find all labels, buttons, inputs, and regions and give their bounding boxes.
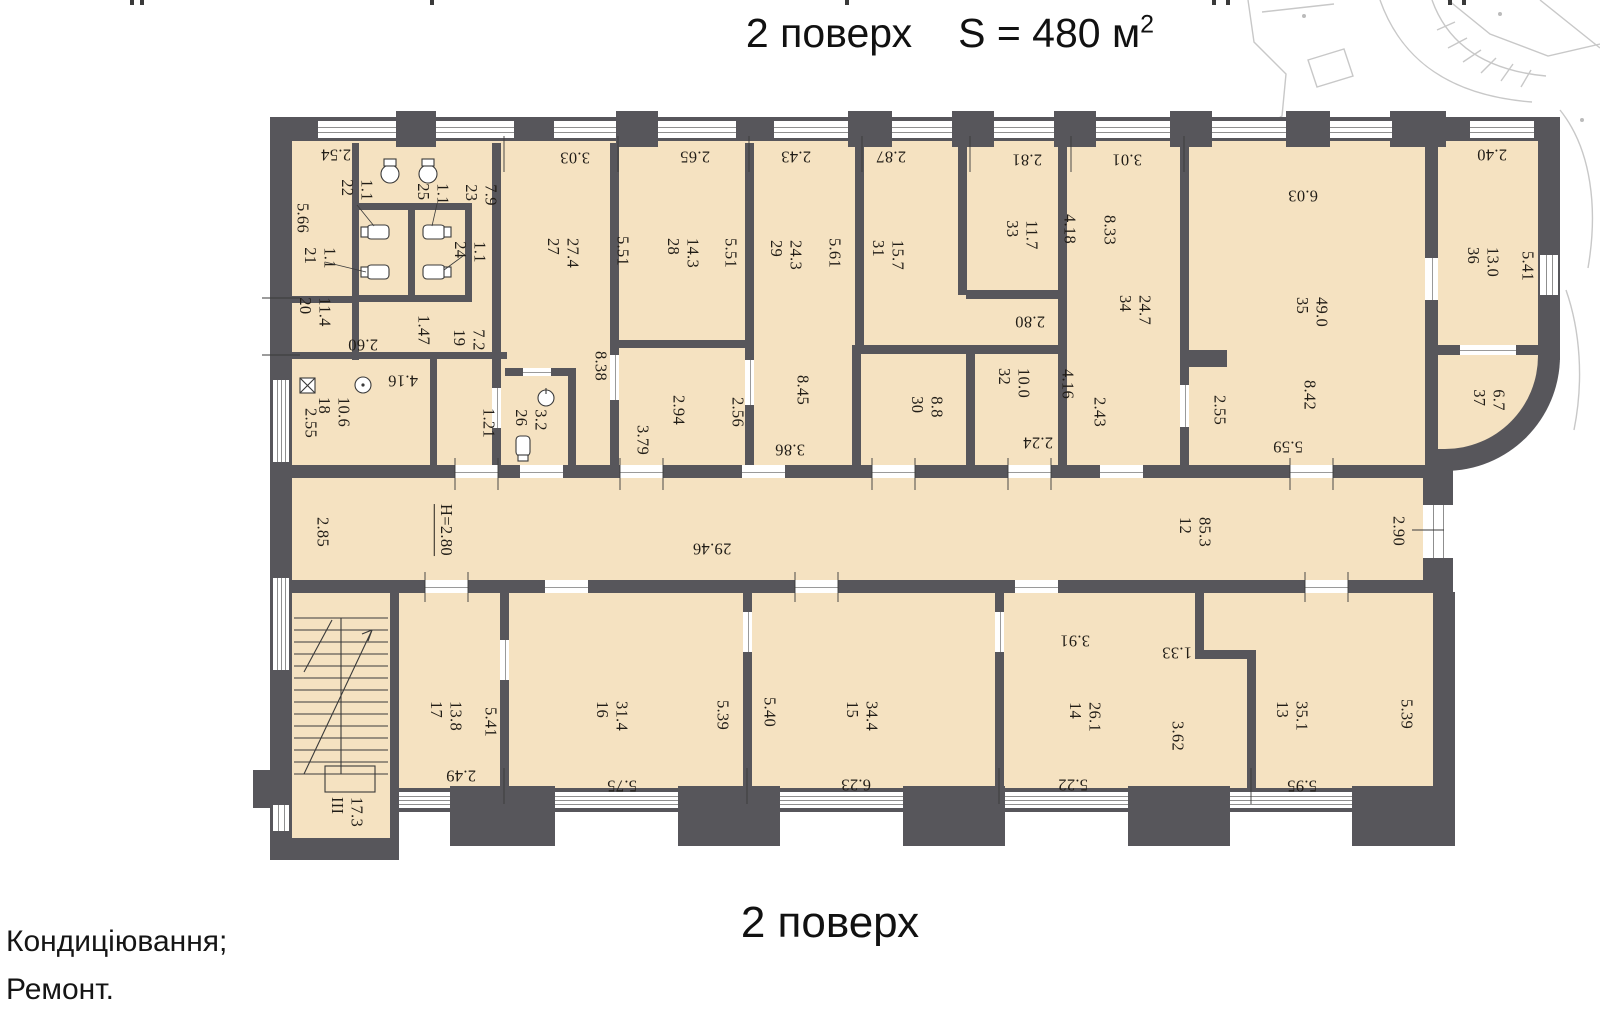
toilet-icon [361, 225, 451, 279]
floorplan-page: 2 поверхS = 480 м2 20 11.421 1.122 1.123… [0, 0, 1600, 1013]
sink-icon [419, 165, 437, 183]
stairs-icon [294, 618, 388, 792]
sink-icon [381, 165, 399, 183]
appliance-icon [300, 377, 371, 393]
footer-floor-label: 2 поверх [640, 898, 1020, 948]
note-repair: Ремонт. [6, 966, 227, 1013]
note-conditioning: Кондиціювання; [6, 918, 227, 966]
footer-notes: Кондиціювання; Ремонт. [6, 918, 227, 1013]
toilet-icon [516, 436, 530, 456]
plan-fixtures [0, 0, 1600, 1013]
